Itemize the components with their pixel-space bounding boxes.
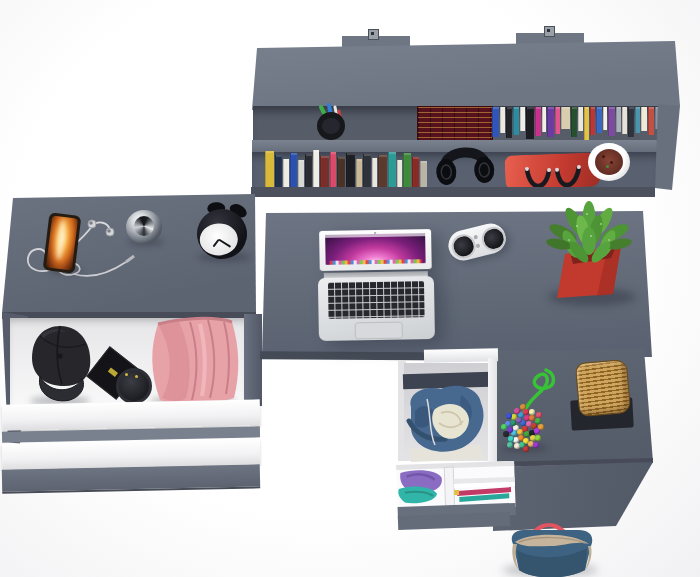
book-spine (513, 107, 519, 135)
laptop (317, 227, 435, 341)
scene-room (0, 0, 700, 577)
book-spine (275, 155, 283, 187)
book-spine (584, 107, 588, 140)
book-spine (628, 107, 634, 137)
book-spine (520, 107, 524, 131)
shelf-right-side (655, 100, 680, 192)
lower-book-row (265, 149, 427, 187)
wicker-basket (575, 359, 632, 417)
laptop-dock (330, 259, 422, 265)
book-spine (265, 151, 274, 187)
wall-bracket-icon (544, 26, 555, 37)
headphones (433, 138, 498, 193)
book-spine (397, 160, 403, 187)
book-spine (500, 107, 505, 133)
book-spine (542, 107, 546, 132)
book-spine (492, 107, 499, 137)
book-spine (305, 154, 312, 187)
bead (533, 442, 539, 448)
upper-book-row (492, 107, 660, 141)
gift-box-logo (108, 368, 118, 377)
succulent-plant (543, 196, 633, 308)
wall-bracket-icon (368, 29, 379, 40)
book-spine (403, 153, 411, 187)
bead (511, 414, 517, 420)
shelf-lower-row (252, 152, 658, 187)
bead (514, 443, 520, 449)
book-spine (378, 155, 387, 187)
book-spine (356, 159, 363, 187)
shelf-upper-row (253, 106, 665, 141)
book-spine (648, 107, 653, 135)
book-spine (641, 107, 647, 131)
pink-clothes (142, 314, 244, 408)
laptop-keyboard (328, 281, 425, 319)
book-spine (506, 107, 512, 138)
open-drawer-right-wall (244, 314, 262, 406)
laptop-menubar (325, 233, 425, 238)
drawer-front-1 (2, 399, 260, 430)
book-spine (372, 158, 378, 187)
bead (501, 424, 507, 430)
centre-drawer-top (424, 348, 498, 362)
book-spine (330, 152, 337, 187)
organizer-drawer (396, 461, 516, 519)
chrome-jar (126, 210, 162, 244)
bead (523, 409, 529, 415)
book-spine (596, 107, 602, 133)
bead (536, 412, 542, 418)
chrome-jar-lid (134, 216, 154, 236)
tote-bag (497, 516, 603, 577)
book-spine (622, 107, 627, 134)
book-spine (346, 153, 355, 187)
book-spine (313, 150, 320, 187)
book-spine (290, 153, 298, 187)
laptop-body (318, 276, 435, 341)
laptop-screen (319, 229, 432, 271)
bead (508, 436, 514, 442)
book-spine (363, 154, 371, 187)
bead (538, 424, 544, 430)
black-cap (26, 320, 96, 406)
book-spine (616, 107, 621, 132)
laptop-wallpaper (325, 233, 426, 265)
book-spine (320, 156, 329, 187)
laptop-trackpad (355, 322, 403, 340)
book-spine (603, 107, 607, 130)
book-spine (526, 107, 534, 139)
alarm-clock (189, 201, 255, 267)
book-spine (283, 159, 289, 187)
bead-bag (500, 402, 546, 454)
bead (507, 442, 513, 448)
book-spine (547, 107, 554, 137)
book-spine (555, 107, 560, 134)
plant-soil (595, 149, 623, 175)
side-unit-lower-band (2, 464, 260, 493)
book-spine (388, 152, 396, 187)
book-spine (412, 157, 420, 187)
book-spine (578, 107, 583, 131)
book-spine (571, 107, 577, 137)
book-spine (561, 107, 570, 129)
book-spine (337, 157, 345, 187)
vintage-books (417, 106, 493, 143)
bead (529, 409, 535, 415)
bead (523, 446, 529, 452)
shelf-plant-pot (588, 143, 630, 181)
book-spine (535, 107, 541, 136)
pen-cup (315, 105, 349, 141)
bead (535, 435, 541, 441)
book-spine (298, 160, 304, 187)
centre-drawer-right-wall (488, 358, 497, 464)
book-spine (420, 161, 427, 187)
shelf-top-board (252, 41, 680, 110)
book-spine (635, 107, 640, 133)
blue-hoodie (401, 381, 493, 463)
bead (513, 437, 519, 443)
book-spine (608, 107, 614, 136)
book-spine (590, 107, 595, 135)
